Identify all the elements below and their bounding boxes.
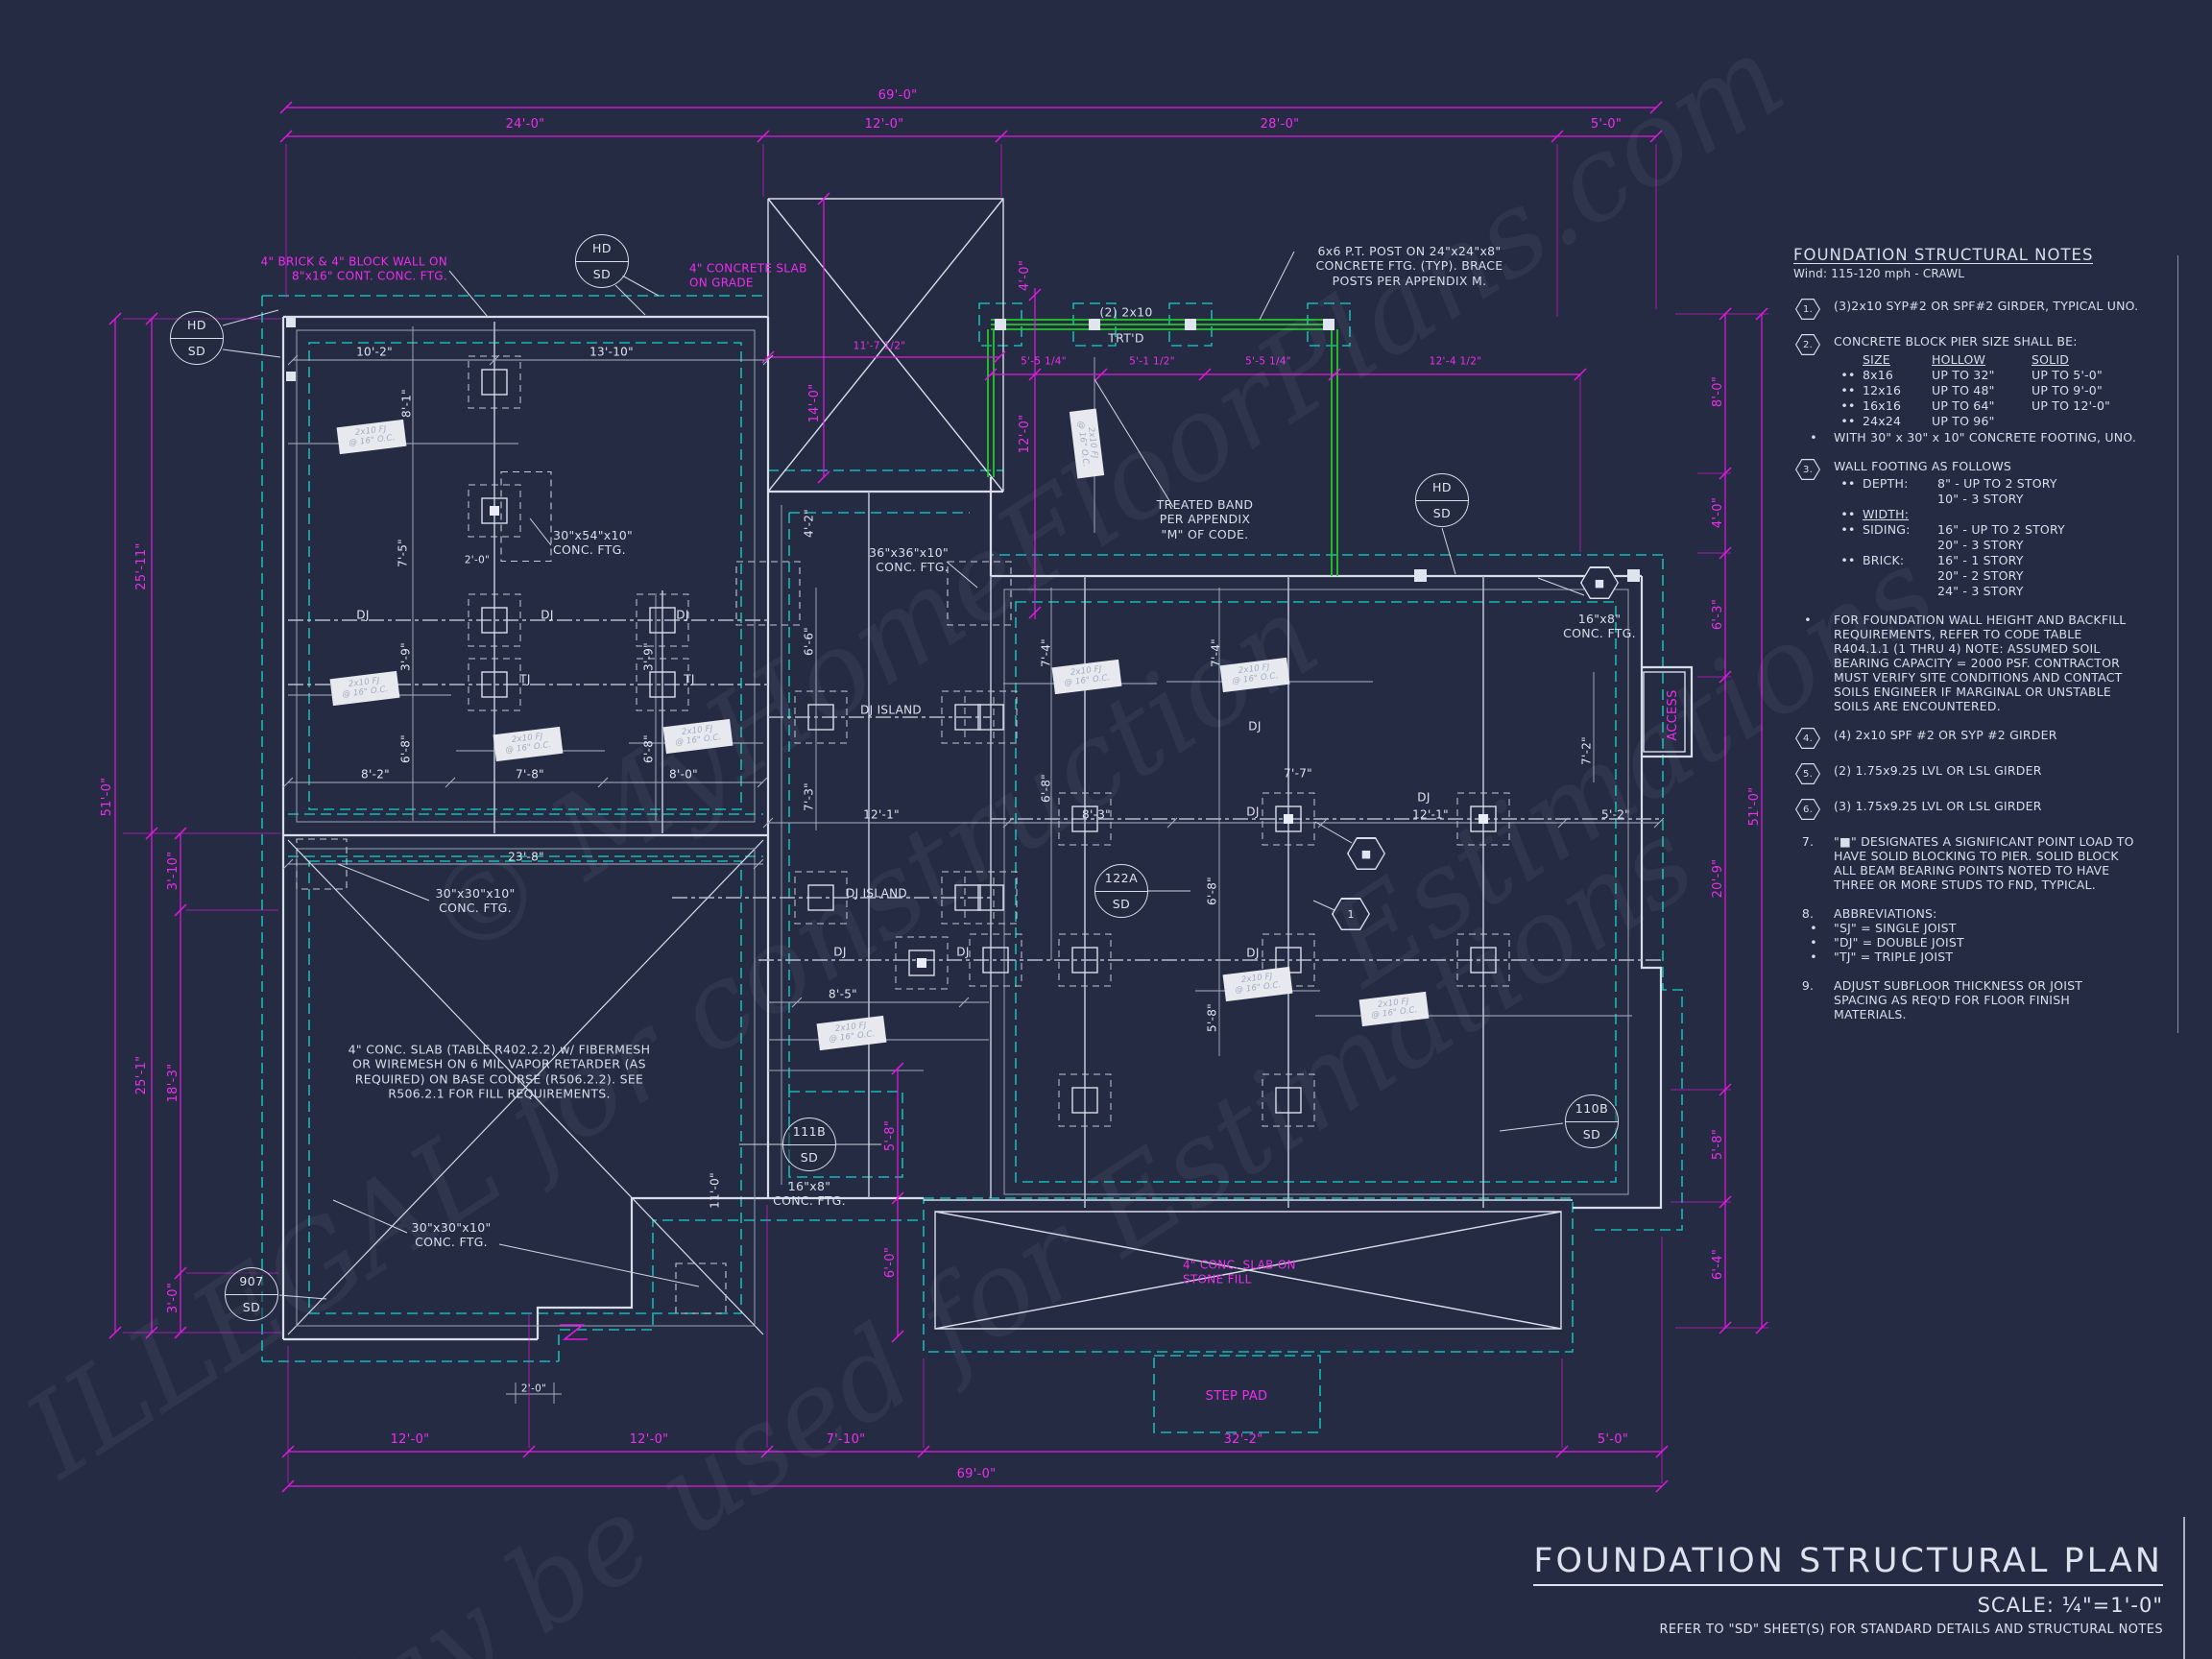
notes-title: FOUNDATION STRUCTURAL NOTES [1793,248,2093,264]
dimension-label: 51'-0" [1747,787,1763,827]
plan-annotation: 6'-8" [1206,877,1220,905]
dimension-label: 25'-1" [134,1056,150,1095]
dimension-label: 4" BRICK & 4" BLOCK WALL ON 8"x16" CONT.… [261,254,447,282]
plan-annotation: DJ [356,609,369,623]
dimension-label: 51'-0" [100,778,115,817]
detail-bubble: HDSD [1415,473,1469,527]
note-4: 4. (4) 2x10 SPF #2 OR SYP #2 GIRDER [1793,728,2185,749]
note-3: 3. WALL FOOTING AS FOLLOWS ••DEPTH:8" - … [1793,459,2185,598]
dimension-label: 5'-5 1/4" [1021,356,1067,369]
pier-layer [469,356,1509,1126]
dimension-label: 6'-4" [1711,1249,1726,1280]
plan-annotation: 2'-0" [465,555,490,567]
plan-annotation: 6'-6" [803,627,817,656]
plan-annotation: DJ ISLAND [846,887,907,902]
dimension-label: 14'-0" [807,384,823,423]
dimension-layer [109,102,1768,1492]
title-block: FOUNDATION STRUCTURAL PLAN SCALE: ¼"=1'-… [1533,1542,2163,1637]
plan-annotation: 11'-0" [709,1172,723,1209]
plan-annotation: DJ [1248,720,1261,734]
hex-number-icon: 2. [1795,334,1820,355]
plan-annotation: 2'-0" [521,1383,546,1396]
dimension-label: 3'-0" [166,1283,181,1313]
notes-wind: Wind: 115-120 mph - CRAWL [1793,267,2185,281]
note-bullet-soil: • FOR FOUNDATION WALL HEIGHT AND BACKFIL… [1793,613,2185,713]
dimension-label: 69'-0" [878,88,918,104]
sheet-scale: SCALE: ¼"=1'-0" [1533,1594,2163,1617]
note-2: 2. CONCRETE BLOCK PIER SIZE SHALL BE: SI… [1793,334,2185,445]
hex-number-icon: 1. [1795,299,1820,320]
detail-bubble: 110BSD [1565,1094,1619,1148]
plan-annotation: DJ [1246,805,1259,820]
plan-annotation: 7'-8" [516,768,544,782]
detail-bubble: 907SD [225,1267,278,1321]
plan-annotation: 3'-9" [642,642,657,671]
plan-annotation: 6x6 P.T. POST ON 24"x24"x8" CONCRETE FTG… [1316,244,1503,288]
dimension-label: 69'-0" [957,1467,997,1482]
plan-annotation: 10'-2" [356,346,393,360]
hex-number-icon: 6. [1795,799,1820,820]
detail-bubble: HDSD [575,234,629,288]
dimension-label: ACCESS [1666,689,1681,740]
dimension-label: 24'-0" [506,117,545,132]
dimension-label: 12'-0" [1018,415,1033,454]
note-1: 1. (3)2x10 SYP#2 OR SPF#2 GIRDER, TYPICA… [1793,299,2185,320]
note-8: 8. ABBREVIATIONS: •"SJ" = SINGLE JOIST •… [1793,906,2185,964]
plan-annotation: TJ [519,673,530,687]
plan-annotation: 7'-7" [1284,767,1312,781]
dimension-label: 5'-0" [1598,1432,1628,1448]
plan-annotation: 5'-2" [1601,808,1630,823]
plan-annotation: 36"x36"x10" CONC. FTG. [869,545,949,575]
dimension-label: 5'-5 1/4" [1245,356,1291,369]
plan-annotation: 7'-5" [397,539,411,567]
dimension-label: 4" CONCRETE SLAB ON GRADE [689,261,807,289]
dimension-label: 12'-0" [865,117,904,132]
detail-bubble: 122ASD [1094,864,1148,918]
dimension-label: 4'-0" [1018,260,1033,291]
plan-annotation: TRT'D [1108,330,1144,345]
plan-annotation: 30"x30"x10" CONC. FTG. [411,1220,491,1250]
plan-annotation: 8'-5" [829,988,857,1002]
dimension-label: 11'-7 1/2" [854,341,906,353]
dimension-label: 28'-0" [1261,117,1300,132]
plan-annotation: 16"x8" CONC. FTG. [1563,612,1636,641]
plan-annotation: 16"x8" CONC. FTG. [773,1179,846,1209]
dimension-label: 4" CONC. SLAB ON STONE FILL [1183,1258,1296,1286]
plan-annotation: 8'-0" [669,768,698,782]
plan-annotation: 23'-8" [508,851,544,865]
plan-annotation: DJ [1246,947,1259,961]
structural-notes-panel: FOUNDATION STRUCTURAL NOTES Wind: 115-12… [1793,248,2185,1036]
plan-annotation: 7'-2" [1580,736,1595,765]
note-7: 7. "■" DESIGNATES A SIGNIFICANT POINT LO… [1793,834,2185,892]
plan-annotation: 7'-4" [1210,638,1224,667]
dimension-label: 5'-0" [1591,117,1622,132]
hex-number-icon: 5. [1795,763,1820,784]
plan-annotation: 30"x30"x10" CONC. FTG. [435,886,515,916]
plan-annotation: 6'-8" [399,734,414,763]
dimension-label: 8'-0" [1711,376,1726,407]
dimension-label: 18'-3" [166,1064,181,1103]
plan-annotation: 12'-1" [1412,808,1449,823]
detail-bubble: HDSD [170,311,224,365]
plan-annotation: TREATED BAND PER APPENDIX "M" OF CODE. [1157,497,1254,541]
plan-annotation: 6'-8" [642,734,657,763]
dimension-label: 3'-10" [166,852,181,891]
dimension-label: 7'-10" [827,1432,866,1448]
dimension-label: 6'-0" [883,1247,899,1278]
plan-annotation: 5'-8" [1206,1003,1220,1032]
note-9: 9. ADJUST SUBFLOOR THICKNESS OR JOIST SP… [1793,978,2185,1022]
plan-annotation: 6'-8" [1040,774,1054,803]
sheet-title: FOUNDATION STRUCTURAL PLAN [1533,1542,2163,1586]
plan-annotation: TJ [684,673,694,687]
plan-annotation: (2) 2x10 [1099,304,1152,319]
dimension-label: 6'-3" [1711,599,1726,630]
plan-annotation: DJ [676,609,688,623]
plan-annotation: 30"x54"x10" CONC. FTG. [553,528,633,558]
plan-annotation: 13'-10" [589,346,634,360]
plan-annotation: DJ [541,609,553,623]
note-5: 5. (2) 1.75x9.25 LVL OR LSL GIRDER [1793,763,2185,784]
sheet-refer-note: REFER TO "SD" SHEET(S) FOR STANDARD DETA… [1533,1623,2163,1637]
plan-annotation: 8'-2" [361,768,390,782]
plan-annotation: 3'-9" [399,642,414,671]
dimension-label: 12'-0" [630,1432,669,1448]
dimension-label: 4'-0" [1711,497,1726,528]
dimension-label: 5'-1 1/2" [1129,356,1175,369]
dimension-label: STEP PAD [1206,1389,1268,1405]
dimension-label: 20'-9" [1711,859,1726,899]
plan-annotation: DJ [956,946,969,960]
blueprint-sheet: FOUNDATION STRUCTURAL NOTES Wind: 115-12… [0,0,2212,1659]
plan-annotation: 8'-1" [400,389,415,418]
dimension-label: 5'-8" [883,1120,899,1151]
dimension-label: 12'-0" [391,1432,430,1448]
hex-number-icon: 4. [1795,728,1820,749]
dimension-label: 5'-8" [1711,1129,1726,1160]
plan-annotation: 7'-3" [803,782,817,811]
plan-annotation: 8'-3" [1082,808,1111,823]
detail-bubble: 111BSD [782,1118,836,1171]
dimension-label: 32'-2" [1224,1432,1263,1448]
plan-annotation: DJ [833,946,846,960]
plan-annotation: DJ [1417,791,1430,805]
dimension-label: 25'-11" [134,542,150,589]
titleblock-divider-line [2183,1517,2185,1659]
hex-number-icon: 3. [1795,459,1820,480]
leader-layer [223,252,1584,1299]
plan-annotation: 4'-2" [803,509,817,538]
plan-annotation: 4" CONC. SLAB (TABLE R402.2.2) w/ FIBERM… [349,1043,651,1101]
note-6: 6. (3) 1.75x9.25 LVL OR LSL GIRDER [1793,799,2185,820]
plan-annotation: DJ ISLAND [860,704,922,718]
dimension-label: 12'-4 1/2" [1430,356,1482,369]
plan-annotation: 12'-1" [863,808,900,823]
plan-annotation: 7'-4" [1040,638,1054,667]
pier-size-table: SIZEHOLLOWSOLID ••8x16UP TO 32"UP TO 5'-… [1834,352,2151,428]
